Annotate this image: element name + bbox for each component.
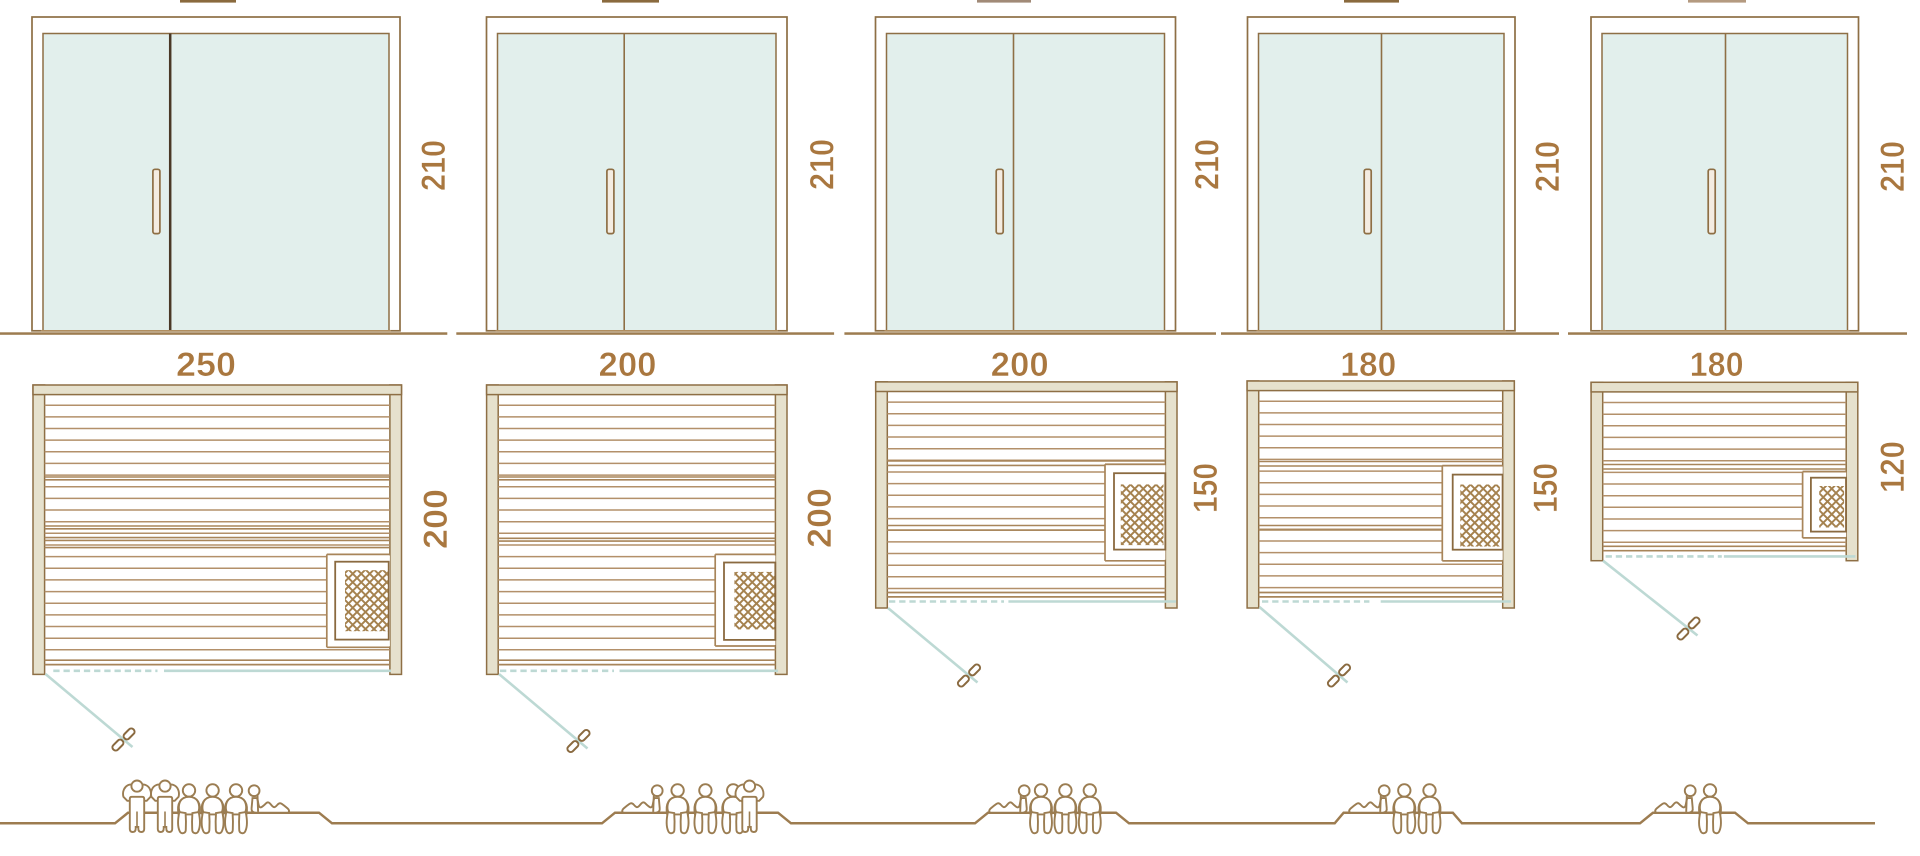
- svg-text:120: 120: [1874, 441, 1912, 493]
- svg-text:200: 200: [991, 346, 1049, 384]
- svg-text:210: 210: [1189, 139, 1227, 190]
- svg-text:180: 180: [1340, 346, 1396, 384]
- svg-text:200: 200: [417, 489, 455, 549]
- svg-text:210: 210: [804, 139, 842, 190]
- svg-text:210: 210: [415, 140, 453, 191]
- svg-text:210: 210: [1874, 141, 1912, 192]
- svg-text:200: 200: [801, 488, 839, 548]
- svg-text:180: 180: [1690, 346, 1744, 384]
- svg-text:250: 250: [176, 346, 236, 384]
- svg-text:210: 210: [1529, 141, 1567, 192]
- svg-text:150: 150: [1187, 463, 1225, 513]
- svg-text:200: 200: [599, 346, 657, 384]
- svg-text:150: 150: [1527, 463, 1565, 513]
